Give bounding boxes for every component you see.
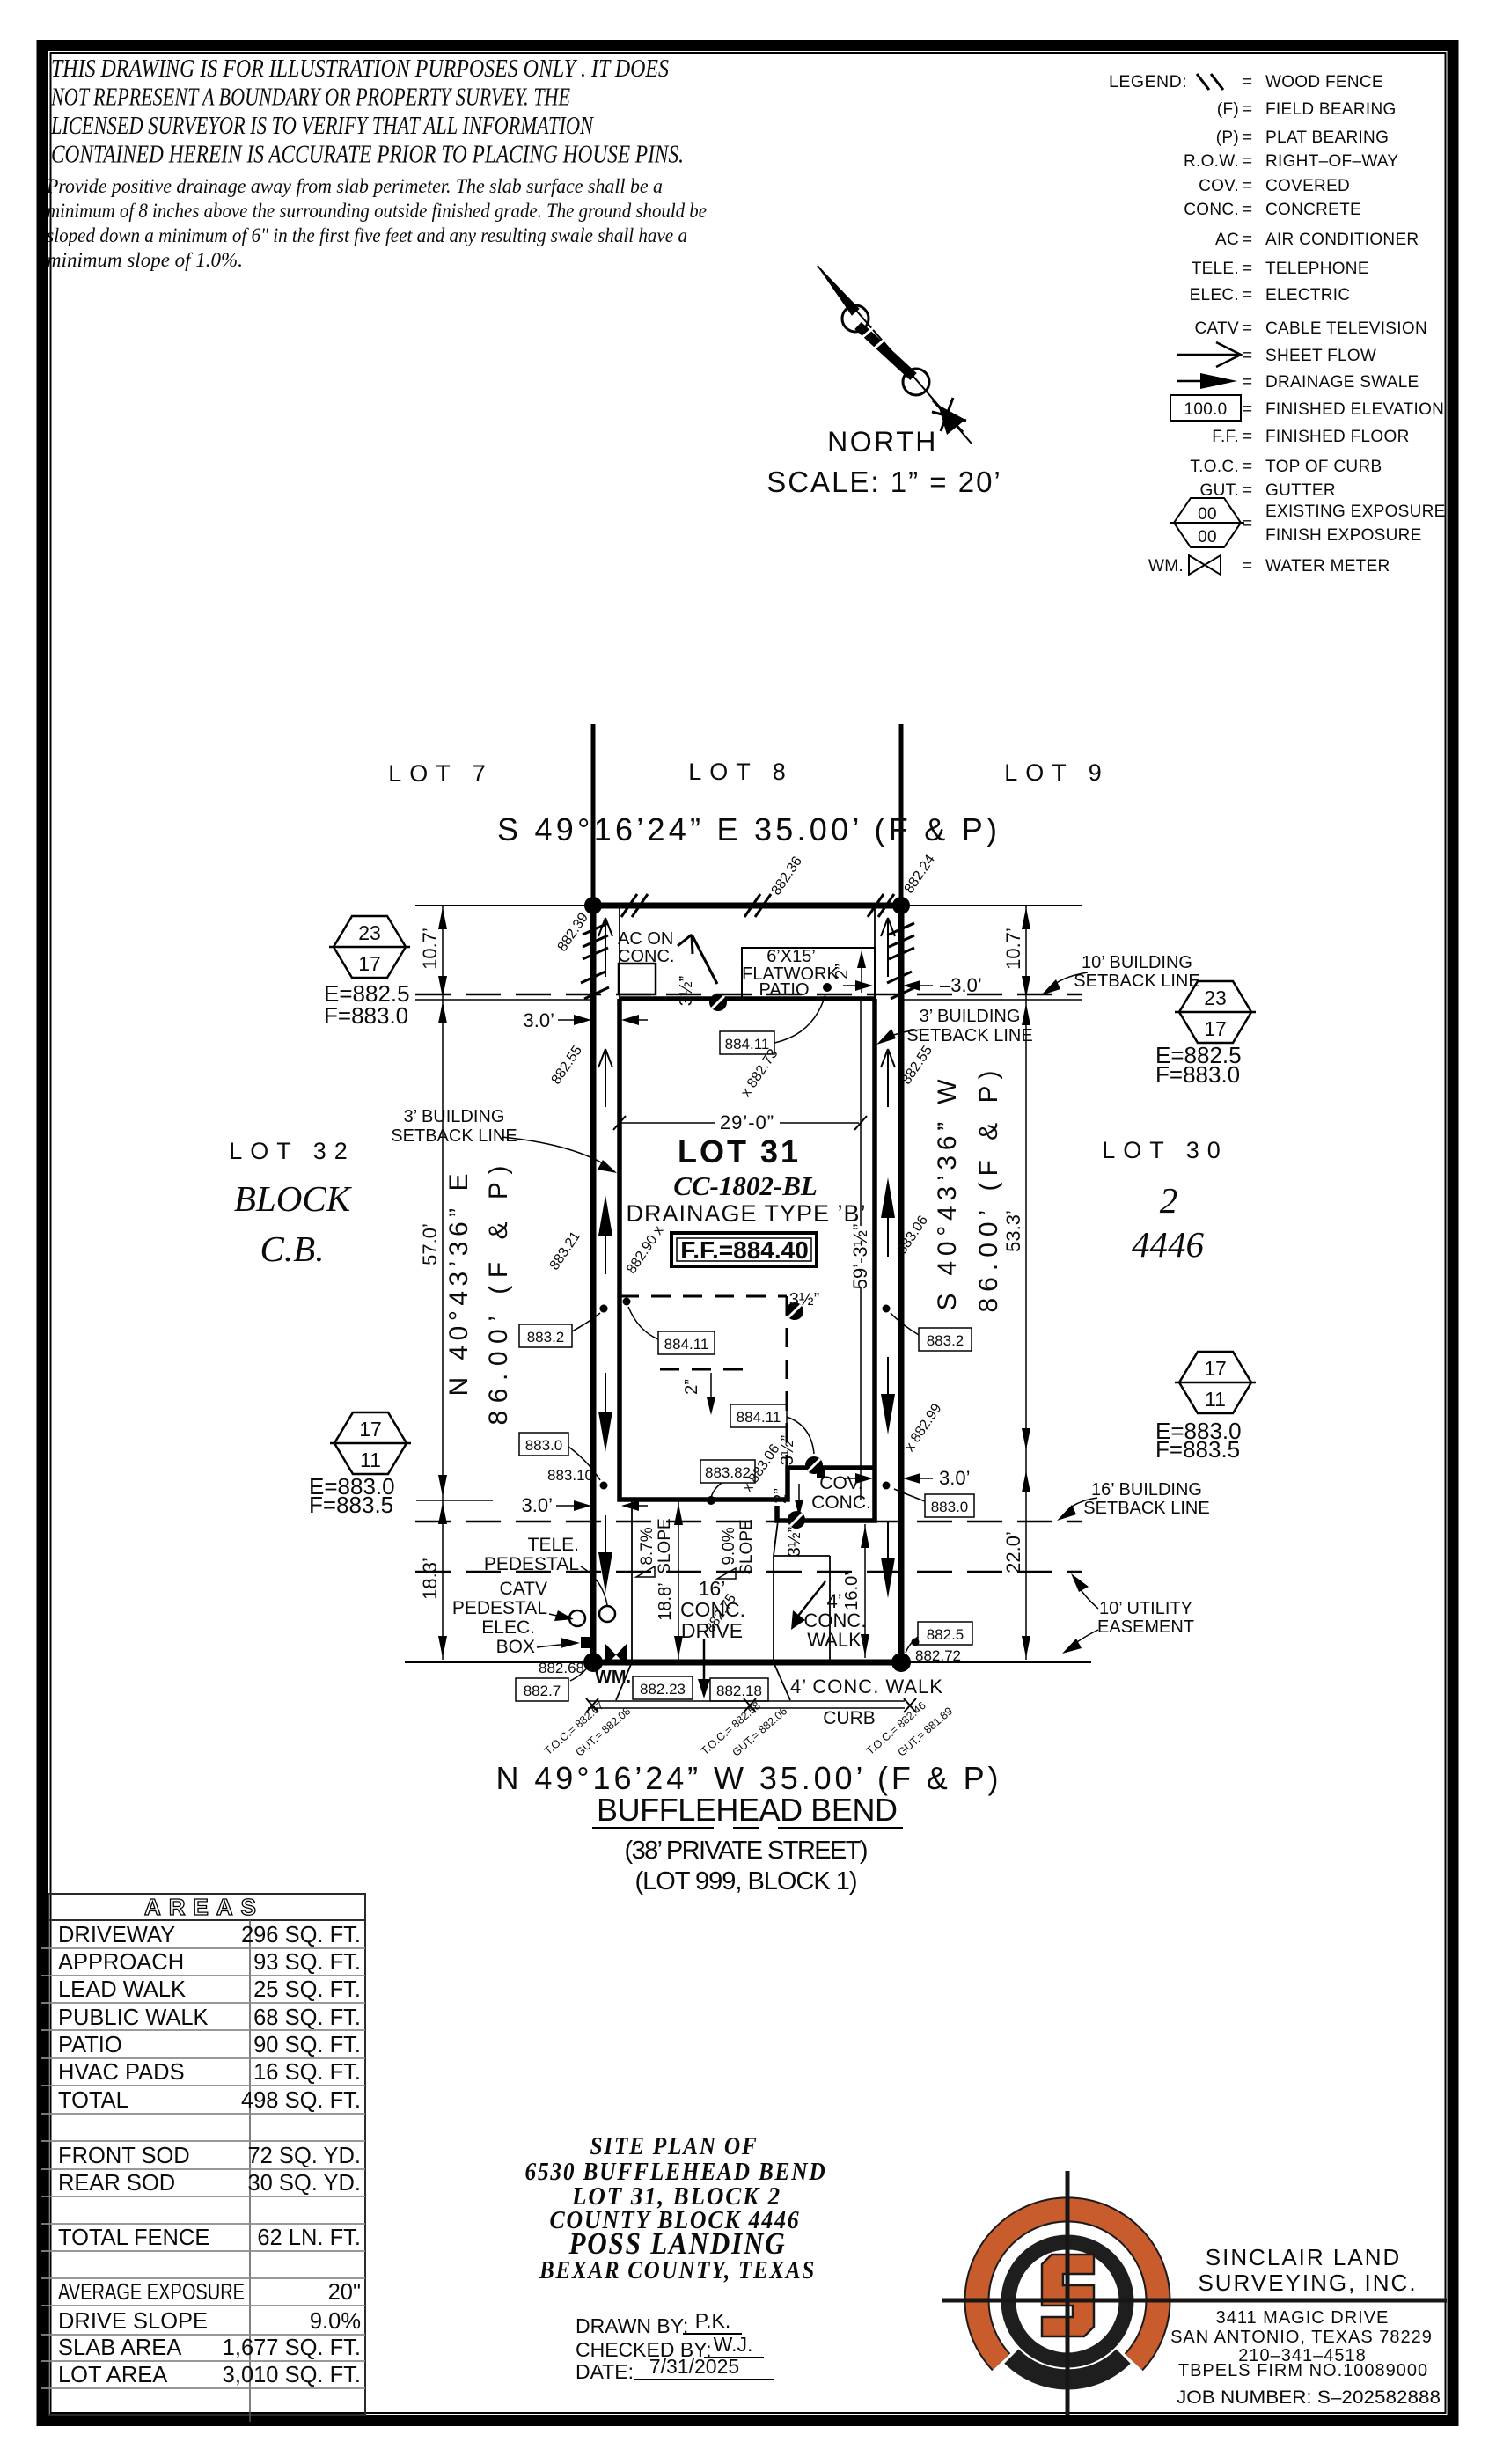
svg-text:GUTTER: GUTTER <box>1265 481 1336 500</box>
svg-text:3411 MAGIC DRIVE: 3411 MAGIC DRIVE <box>1216 2308 1390 2328</box>
svg-text:CABLE TELEVISION: CABLE TELEVISION <box>1265 319 1427 338</box>
svg-text:Provide positive drainage away: Provide positive drainage away from slab… <box>46 175 663 197</box>
svg-text:SLAB AREA: SLAB AREA <box>58 2336 181 2360</box>
svg-text:=: = <box>1243 458 1252 476</box>
svg-text:PLAT BEARING: PLAT BEARING <box>1265 128 1389 147</box>
svg-text:SETBACK LINE: SETBACK LINE <box>391 1126 517 1146</box>
svg-text:3½”: 3½” <box>677 976 696 1006</box>
svg-text:BUFFLEHEAD BEND: BUFFLEHEAD BEND <box>597 1792 899 1828</box>
svg-text:R.O.W.: R.O.W. <box>1184 152 1239 171</box>
svg-text:59’-3½”: 59’-3½” <box>849 1224 871 1290</box>
svg-text:SLOPE: SLOPE <box>656 1518 674 1573</box>
svg-text:2”: 2” <box>682 1379 701 1395</box>
svg-text:F=883.0: F=883.0 <box>1155 1061 1240 1088</box>
svg-text:CONC.: CONC. <box>1184 201 1239 219</box>
svg-text:100.0: 100.0 <box>1184 400 1227 419</box>
svg-text:3½”: 3½” <box>785 1527 804 1557</box>
svg-text:REAR SOD: REAR SOD <box>58 2171 175 2196</box>
svg-text:11: 11 <box>360 1448 381 1471</box>
svg-text:WM.: WM. <box>1148 557 1184 576</box>
svg-text:LICENSED SURVEYOR IS TO VERIFY: LICENSED SURVEYOR IS TO VERIFY THAT ALL … <box>50 113 594 140</box>
svg-text:3’ BUILDING: 3’ BUILDING <box>920 1007 1021 1026</box>
svg-text:883.2: 883.2 <box>527 1329 565 1346</box>
svg-text:F.F.=884.40: F.F.=884.40 <box>680 1236 809 1264</box>
svg-text:LOT 7: LOT 7 <box>388 760 494 787</box>
svg-text:AREAS: AREAS <box>144 1894 264 1920</box>
svg-text:3’ BUILDING: 3’ BUILDING <box>404 1107 505 1126</box>
svg-text:FINISHED FLOOR: FINISHED FLOOR <box>1265 428 1410 446</box>
svg-text:882.68: 882.68 <box>539 1660 584 1676</box>
svg-text:PATIO: PATIO <box>58 2033 122 2057</box>
svg-text:AC: AC <box>1215 231 1239 249</box>
svg-text:7/31/2025: 7/31/2025 <box>649 2355 739 2378</box>
svg-text:17: 17 <box>358 952 381 975</box>
svg-text:HVAC PADS: HVAC PADS <box>58 2060 185 2085</box>
svg-text:F.F.: F.F. <box>1212 428 1239 446</box>
svg-text:17: 17 <box>359 1418 382 1441</box>
svg-text:16.0’: 16.0’ <box>842 1572 862 1610</box>
svg-text:COVERED: COVERED <box>1265 177 1350 195</box>
svg-text:DRAINAGE TYPE ’B’: DRAINAGE TYPE ’B’ <box>626 1200 866 1227</box>
svg-text:NORTH: NORTH <box>827 426 938 458</box>
svg-text:=: = <box>1243 128 1252 147</box>
svg-text:F=883.5: F=883.5 <box>309 1492 393 1518</box>
svg-text:W.J.: W.J. <box>714 2333 753 2356</box>
svg-text:WOOD FENCE: WOOD FENCE <box>1265 73 1383 92</box>
svg-text:883.0: 883.0 <box>931 1499 969 1515</box>
svg-text:FINISHED ELEVATION: FINISHED ELEVATION <box>1265 400 1444 419</box>
svg-text:3.0’: 3.0’ <box>522 1494 553 1516</box>
svg-text:F=883.0: F=883.0 <box>324 1002 408 1029</box>
svg-text:TELE.: TELE. <box>1192 260 1239 278</box>
svg-text:WALK: WALK <box>807 1629 862 1651</box>
svg-text:ELEC.: ELEC. <box>481 1617 535 1638</box>
svg-text:minimum slope of 1.0%.: minimum slope of 1.0%. <box>47 249 243 271</box>
svg-text:=: = <box>1243 286 1252 304</box>
svg-text:TOP OF CURB: TOP OF CURB <box>1265 458 1382 476</box>
svg-text:JOB NUMBER: S–202582888: JOB NUMBER: S–202582888 <box>1177 2387 1441 2408</box>
svg-text:LOT 8: LOT 8 <box>688 759 794 785</box>
svg-text:498 SQ. FT.: 498 SQ. FT. <box>241 2088 361 2113</box>
svg-text:17: 17 <box>1204 1017 1227 1040</box>
svg-text:882.23: 882.23 <box>640 1681 686 1698</box>
svg-text:TBPELS FIRM NO.10089000: TBPELS FIRM NO.10089000 <box>1178 2361 1428 2380</box>
svg-text:=: = <box>1243 428 1252 446</box>
svg-text:LEGEND:: LEGEND: <box>1109 72 1187 92</box>
svg-text:TOTAL: TOTAL <box>58 2088 128 2113</box>
svg-text:=: = <box>1243 481 1252 500</box>
svg-text:EXISTING EXPOSURE: EXISTING EXPOSURE <box>1265 502 1446 521</box>
svg-text:10.7’: 10.7’ <box>419 928 441 970</box>
svg-text:WM.: WM. <box>595 1668 631 1687</box>
svg-text:16 SQ. FT.: 16 SQ. FT. <box>253 2060 361 2085</box>
svg-text:TELE.: TELE. <box>528 1535 579 1555</box>
svg-text:18.3’: 18.3’ <box>419 1558 441 1600</box>
svg-text:DRIVE SLOPE: DRIVE SLOPE <box>58 2309 208 2334</box>
svg-text:882.5: 882.5 <box>927 1626 964 1643</box>
svg-text:884.11: 884.11 <box>664 1336 709 1353</box>
svg-text:sloped down a minimum of 6" in: sloped down a minimum of 6" in the first… <box>47 224 687 246</box>
svg-text:18.8’: 18.8’ <box>656 1582 675 1620</box>
svg-text:2: 2 <box>1160 1180 1178 1221</box>
svg-text:=: = <box>1243 177 1252 195</box>
svg-text:LOT AREA: LOT AREA <box>58 2363 167 2387</box>
svg-text:884.11: 884.11 <box>725 1036 770 1052</box>
svg-text:SLOPE: SLOPE <box>737 1519 756 1574</box>
svg-text:BEXAR COUNTY, TEXAS: BEXAR COUNTY, TEXAS <box>539 2256 816 2284</box>
svg-text:FINISH EXPOSURE: FINISH EXPOSURE <box>1265 526 1422 545</box>
svg-text:COV.: COV. <box>1199 177 1239 195</box>
svg-text:BLOCK: BLOCK <box>234 1178 353 1219</box>
svg-text:EASEMENT: EASEMENT <box>1097 1617 1194 1637</box>
svg-text:LOT 31: LOT 31 <box>678 1133 801 1170</box>
svg-text:DRIVEWAY: DRIVEWAY <box>58 1923 175 1947</box>
svg-text:DRAINAGE SWALE: DRAINAGE SWALE <box>1265 373 1419 392</box>
svg-text:90 SQ. FT.: 90 SQ. FT. <box>253 2033 361 2057</box>
svg-text:=: = <box>1243 557 1252 576</box>
svg-text:4’ CONC. WALK: 4’ CONC. WALK <box>790 1676 943 1698</box>
svg-text:=: = <box>1243 152 1252 171</box>
svg-text:883.82: 883.82 <box>705 1464 751 1481</box>
svg-text:3,010 SQ. FT.: 3,010 SQ. FT. <box>223 2363 361 2387</box>
svg-text:=: = <box>1243 201 1252 219</box>
svg-text:10’ UTILITY: 10’ UTILITY <box>1099 1599 1192 1618</box>
svg-text:SITE PLAN OF: SITE PLAN OF <box>590 2132 759 2160</box>
svg-text:29’-0”: 29’-0” <box>720 1111 774 1133</box>
svg-text:57.0’: 57.0’ <box>419 1223 441 1265</box>
svg-text:DRAWN BY:: DRAWN BY: <box>576 2314 688 2337</box>
svg-text:CONC.: CONC. <box>811 1492 871 1513</box>
svg-text:16’: 16’ <box>699 1577 726 1600</box>
svg-text:68 SQ. FT.: 68 SQ. FT. <box>253 2006 361 2030</box>
svg-text:AVERAGE EXPOSURE: AVERAGE EXPOSURE <box>58 2280 245 2305</box>
svg-text:10’ BUILDING: 10’ BUILDING <box>1082 953 1192 972</box>
svg-text:884.11: 884.11 <box>737 1409 781 1426</box>
svg-text:883.10: 883.10 <box>547 1467 593 1484</box>
svg-text:62 LN. FT.: 62 LN. FT. <box>257 2226 361 2250</box>
svg-text:WATER METER: WATER METER <box>1265 557 1390 576</box>
svg-text:00: 00 <box>1198 528 1217 546</box>
svg-text:LOT 32: LOT 32 <box>229 1138 356 1164</box>
svg-text:CONTAINED HEREIN IS ACCURATE P: CONTAINED HEREIN IS ACCURATE PRIOR TO PL… <box>51 142 684 169</box>
svg-text:6’X15’: 6’X15’ <box>766 947 816 966</box>
svg-text:SCALE: 1” = 20’: SCALE: 1” = 20’ <box>766 466 1002 498</box>
svg-text:883.2: 883.2 <box>927 1332 964 1349</box>
svg-text:1,677 SQ. FT.: 1,677 SQ. FT. <box>223 2336 361 2360</box>
svg-text:(38’ PRIVATE STREET): (38’ PRIVATE STREET) <box>625 1837 869 1865</box>
svg-text:T.O.C.: T.O.C. <box>1190 458 1239 476</box>
svg-text:DATE:: DATE: <box>576 2360 634 2383</box>
svg-text:PEDESTAL: PEDESTAL <box>484 1554 579 1574</box>
svg-text:8.7%: 8.7% <box>638 1527 656 1565</box>
svg-text:=: = <box>1243 319 1252 338</box>
svg-text:TELEPHONE: TELEPHONE <box>1265 260 1369 278</box>
svg-text:=: = <box>1243 260 1252 278</box>
svg-text:9.0%: 9.0% <box>310 2309 361 2334</box>
svg-text:30 SQ. YD.: 30 SQ. YD. <box>247 2171 361 2196</box>
svg-text:23: 23 <box>1204 986 1227 1009</box>
svg-text:CURB: CURB <box>823 1708 876 1728</box>
svg-text:F=883.5: F=883.5 <box>1155 1436 1240 1463</box>
svg-text:LOT 9: LOT 9 <box>1004 759 1110 786</box>
svg-text:882.72: 882.72 <box>915 1647 961 1664</box>
svg-text:LOT 30: LOT 30 <box>1102 1137 1228 1163</box>
svg-text:PEDESTAL: PEDESTAL <box>452 1598 547 1618</box>
svg-text:11: 11 <box>1205 1388 1226 1411</box>
svg-text:72 SQ. YD.: 72 SQ. YD. <box>247 2144 361 2168</box>
svg-text:3½”: 3½” <box>789 1290 819 1309</box>
svg-text:3.0’: 3.0’ <box>524 1009 554 1031</box>
svg-text:minimum of 8 inches above the: minimum of 8 inches above the surroundin… <box>47 200 707 222</box>
svg-text:22.0’: 22.0’ <box>1002 1531 1024 1573</box>
svg-text:AC ON: AC ON <box>618 929 673 949</box>
svg-text:93 SQ. FT.: 93 SQ. FT. <box>253 1950 361 1975</box>
svg-text:S 40°43’36” W: S 40°43’36” W <box>933 1078 962 1311</box>
svg-text:(P): (P) <box>1216 128 1239 147</box>
svg-text:=: = <box>1243 73 1252 92</box>
svg-text:882.18: 882.18 <box>716 1683 762 1699</box>
svg-text:9.0%: 9.0% <box>720 1527 738 1565</box>
svg-text:20": 20" <box>328 2280 361 2305</box>
svg-text:SETBACK LINE: SETBACK LINE <box>906 1026 1032 1045</box>
svg-text:00: 00 <box>1198 505 1217 524</box>
svg-text:THIS DRAWING IS FOR ILLUSTRATI: THIS DRAWING IS FOR ILLUSTRATION PURPOSE… <box>51 55 669 83</box>
svg-text:=: = <box>1243 347 1252 365</box>
svg-text:=: = <box>1243 400 1252 419</box>
svg-text:AIR CONDITIONER: AIR CONDITIONER <box>1265 231 1419 249</box>
svg-text:(LOT 999, BLOCK 1): (LOT 999, BLOCK 1) <box>635 1867 858 1896</box>
svg-text:2”: 2” <box>771 1488 790 1504</box>
svg-text:25 SQ. FT.: 25 SQ. FT. <box>253 1977 361 2002</box>
svg-text:=: = <box>1243 100 1252 119</box>
svg-text:CATV: CATV <box>500 1579 547 1599</box>
svg-text:N 49°16’24” W 35.00’ (F & P): N 49°16’24” W 35.00’ (F & P) <box>496 1760 1001 1796</box>
svg-text:10.7’: 10.7’ <box>1002 928 1024 970</box>
svg-text:–3.0’: –3.0’ <box>940 974 982 996</box>
svg-text:882.7: 882.7 <box>524 1683 561 1699</box>
svg-text:FIELD BEARING: FIELD BEARING <box>1265 100 1397 119</box>
svg-text:CC-1802-BL: CC-1802-BL <box>673 1170 818 1201</box>
svg-text:SETBACK LINE: SETBACK LINE <box>1083 1499 1209 1518</box>
svg-text:23: 23 <box>358 921 381 944</box>
svg-text:4446: 4446 <box>1132 1224 1205 1265</box>
svg-text:PUBLIC WALK: PUBLIC WALK <box>58 2006 209 2030</box>
svg-text:SINCLAIR LAND: SINCLAIR LAND <box>1206 2244 1402 2270</box>
svg-text:(F): (F) <box>1217 100 1239 119</box>
svg-text:CONCRETE: CONCRETE <box>1265 201 1361 219</box>
svg-text:17: 17 <box>1204 1357 1227 1380</box>
svg-text:LEAD WALK: LEAD WALK <box>58 1977 186 2002</box>
svg-text:CONC.: CONC. <box>618 947 674 966</box>
svg-text:RIGHT–OF–WAY: RIGHT–OF–WAY <box>1265 152 1398 171</box>
svg-text:FRONT SOD: FRONT SOD <box>58 2144 190 2168</box>
svg-text:TOTAL FENCE: TOTAL FENCE <box>58 2226 209 2250</box>
svg-text:16’ BUILDING: 16’ BUILDING <box>1091 1480 1202 1500</box>
svg-text:CATV: CATV <box>1195 319 1239 338</box>
svg-text:=: = <box>1243 373 1252 392</box>
svg-text:S 49°16’24” E 35.00’ (F & P): S 49°16’24” E 35.00’ (F & P) <box>497 811 999 847</box>
svg-text:NOT REPRESENT A BOUNDARY OR PR: NOT REPRESENT A BOUNDARY OR PROPERTY SUR… <box>50 84 570 112</box>
svg-text:SURVEYING, INC.: SURVEYING, INC. <box>1198 2270 1417 2296</box>
svg-text:GUT.: GUT. <box>1200 481 1239 500</box>
svg-text:296 SQ. FT.: 296 SQ. FT. <box>241 1923 361 1947</box>
svg-text:=: = <box>1243 231 1252 249</box>
svg-text:SHEET FLOW: SHEET FLOW <box>1265 347 1376 365</box>
svg-text:53.3’: 53.3’ <box>1002 1210 1024 1252</box>
svg-text:=: = <box>1243 515 1252 533</box>
svg-text:SETBACK LINE: SETBACK LINE <box>1074 972 1199 991</box>
svg-text:ELEC.: ELEC. <box>1190 286 1239 304</box>
svg-text:2”: 2” <box>832 964 852 979</box>
svg-text:APPROACH: APPROACH <box>58 1950 184 1975</box>
svg-text:P.K.: P.K. <box>695 2309 731 2332</box>
svg-text:3.0’: 3.0’ <box>939 1467 970 1489</box>
svg-text:BOX: BOX <box>496 1637 535 1657</box>
svg-text:C.B.: C.B. <box>260 1228 325 1269</box>
svg-text:ELECTRIC: ELECTRIC <box>1265 286 1350 304</box>
svg-text:PATIO: PATIO <box>759 980 809 1000</box>
svg-text:883.0: 883.0 <box>525 1437 563 1454</box>
svg-text:SAN ANTONIO, TEXAS 78229: SAN ANTONIO, TEXAS 78229 <box>1170 2328 1433 2347</box>
